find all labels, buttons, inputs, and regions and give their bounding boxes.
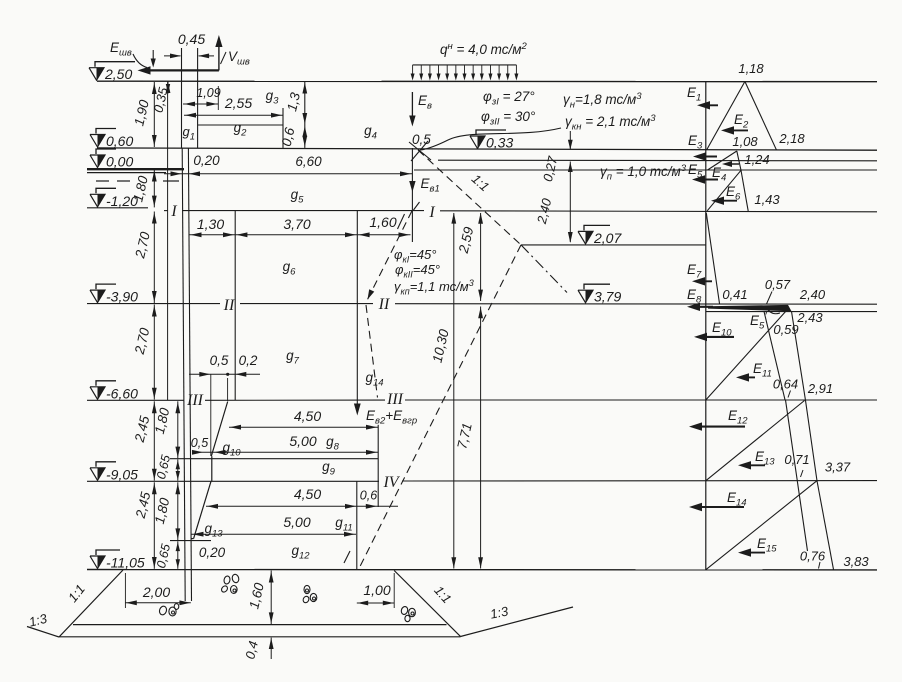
svg-text:II: II: [378, 296, 390, 313]
svg-text:-6,60: -6,60: [106, 385, 138, 401]
svg-text:2,91: 2,91: [807, 381, 833, 396]
svg-text:6,60: 6,60: [295, 154, 322, 169]
svg-text:-3,90: -3,90: [106, 289, 138, 305]
svg-text:0,33: 0,33: [486, 135, 513, 151]
svg-text:5,00: 5,00: [289, 433, 316, 449]
svg-text:0,57: 0,57: [765, 277, 791, 292]
svg-text:4,50: 4,50: [294, 408, 321, 424]
svg-text:2,07: 2,07: [593, 230, 622, 246]
svg-text:1,30: 1,30: [197, 216, 224, 232]
svg-text:I: I: [428, 204, 435, 221]
svg-text:-11,05: -11,05: [106, 555, 145, 571]
svg-text:1,24: 1,24: [744, 152, 769, 167]
svg-text:0,5: 0,5: [210, 353, 229, 368]
svg-text:1,09: 1,09: [196, 86, 220, 100]
svg-text:3,37: 3,37: [825, 460, 851, 475]
svg-text:0,6: 0,6: [360, 489, 377, 503]
svg-text:II: II: [223, 297, 235, 314]
svg-text:III: III: [386, 391, 404, 408]
svg-text:1,08: 1,08: [732, 134, 758, 149]
svg-text:0,2: 0,2: [239, 353, 258, 368]
svg-text:0,20: 0,20: [193, 153, 220, 168]
svg-text:0,5: 0,5: [191, 436, 208, 450]
svg-text:qн = 4,0 тс/м2: qн = 4,0 тс/м2: [440, 41, 528, 57]
svg-text:1,43: 1,43: [754, 192, 780, 207]
svg-text:4,50: 4,50: [294, 486, 321, 502]
svg-text:φкII=45°: φкII=45°: [395, 262, 440, 280]
svg-text:III: III: [186, 392, 204, 409]
svg-text:0,60: 0,60: [106, 133, 133, 149]
svg-text:I: I: [170, 203, 177, 220]
svg-text:2,40: 2,40: [799, 287, 826, 302]
svg-text:0,45: 0,45: [178, 31, 205, 47]
svg-text:2,43: 2,43: [796, 310, 823, 325]
svg-text:0,20: 0,20: [199, 545, 226, 560]
svg-text:0,41: 0,41: [722, 287, 747, 302]
svg-text:3,70: 3,70: [283, 216, 310, 232]
svg-text:IV: IV: [382, 474, 400, 491]
svg-text:0,76: 0,76: [800, 549, 826, 564]
svg-text:0,5: 0,5: [412, 132, 431, 147]
svg-text:3,83: 3,83: [843, 554, 869, 569]
svg-text:0,71: 0,71: [784, 452, 809, 467]
svg-text:1,00: 1,00: [363, 582, 390, 598]
svg-text:5,00: 5,00: [283, 514, 310, 530]
svg-text:1,60: 1,60: [369, 214, 396, 230]
svg-text:2,55: 2,55: [224, 95, 252, 111]
svg-text:0,00: 0,00: [106, 154, 133, 170]
svg-text:1,18: 1,18: [738, 61, 764, 76]
svg-text:-9,05: -9,05: [106, 466, 138, 482]
svg-text:3,79: 3,79: [594, 289, 621, 305]
svg-text:2,50: 2,50: [104, 66, 132, 82]
svg-text:2,18: 2,18: [778, 131, 805, 146]
svg-text:2,00: 2,00: [142, 584, 170, 600]
svg-text:0,64: 0,64: [773, 377, 798, 392]
